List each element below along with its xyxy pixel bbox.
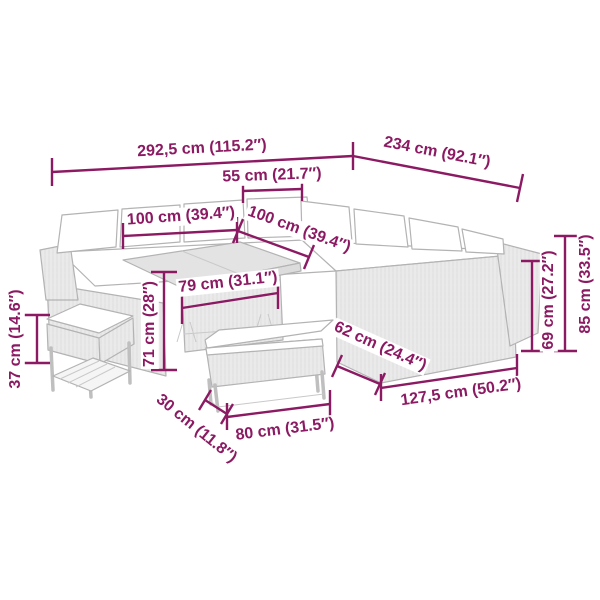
dimension-label-armrest-height: 69 cm (27.2″): [540, 248, 558, 351]
stool-illustration: [47, 304, 134, 397]
bench-illustration: [205, 320, 333, 411]
dimension-label-stool-height: 37 cm (14.6″): [7, 287, 25, 390]
furniture-illustration: [0, 0, 600, 600]
dimension-label-total-height: 85 cm (33.5″): [577, 232, 595, 335]
dimension-label-table-height: 71 cm (28″): [141, 279, 159, 369]
dimension-label-corner-seat-width: 55 cm (21.7″): [220, 165, 324, 187]
product-dimension-diagram: 292,5 cm (115.2″) 234 cm (92.1″) 55 cm (…: [0, 0, 600, 600]
